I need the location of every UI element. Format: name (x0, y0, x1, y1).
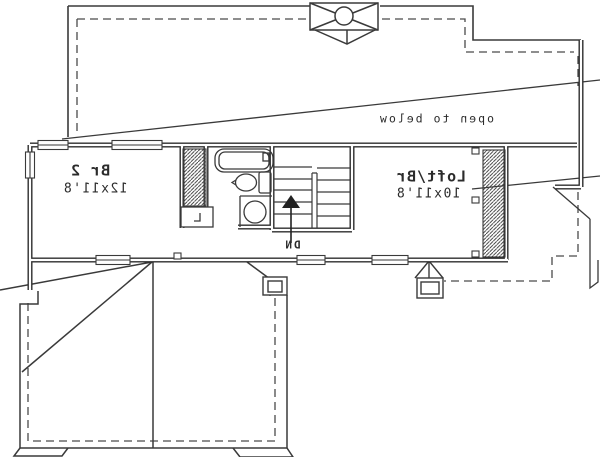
floor-plan: Br 2 12x11'8 Loft/Br 10x11'8 open to bel… (0, 0, 600, 457)
bay-window-icon (310, 3, 378, 44)
loft-closet-hatch (483, 150, 505, 257)
window-icon (96, 256, 130, 265)
cabinet-icon (181, 207, 213, 227)
toilet-icon (232, 172, 271, 193)
window-icon (297, 256, 325, 265)
br2-room-dimensions: 12x11'8 (62, 183, 127, 196)
bathtub-icon (215, 149, 273, 172)
closet-hatch-areas (183, 148, 505, 257)
loft-room-label: Loft/Br (396, 170, 466, 185)
window-icon (26, 152, 35, 178)
window-icon (38, 141, 68, 150)
window-icon (372, 256, 408, 265)
roof-diagonal-lines (62, 80, 600, 288)
sink-icon (240, 196, 272, 227)
window-icon (112, 141, 162, 150)
closet-door-post (472, 197, 479, 203)
chimney-icon (263, 277, 287, 295)
bathroom-fixtures (215, 149, 273, 227)
open-to-below-note: open to below (378, 113, 494, 125)
garage-outline (0, 262, 293, 457)
closet-door-post (472, 148, 479, 154)
staircase (274, 167, 351, 228)
br2-room-label: Br 2 (70, 164, 110, 179)
fireplace-icon (415, 261, 443, 298)
wall-notch (174, 253, 181, 259)
loft-room-dimensions: 10x11'8 (395, 188, 460, 201)
closet-door-post (472, 251, 479, 257)
stair-dn-label: DN (283, 240, 300, 251)
floor-plan-linework (0, 0, 600, 457)
br2-closet-hatch (183, 149, 206, 206)
